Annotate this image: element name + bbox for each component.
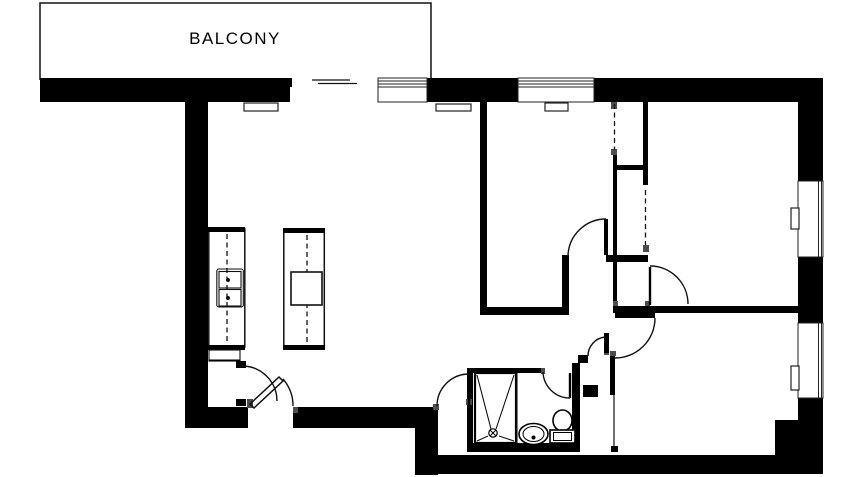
- kitchen: [208, 227, 325, 361]
- wall-segment: [438, 455, 823, 474]
- door-swing-arc: [568, 219, 606, 256]
- wall-step: [583, 385, 598, 397]
- counter-end: [208, 345, 245, 350]
- door-swing-arc: [283, 379, 293, 406]
- wall-segment: [798, 257, 823, 323]
- balcony-label: BALCONY: [189, 29, 281, 48]
- window: [518, 78, 594, 102]
- closet-wall: [617, 165, 643, 170]
- jamb: [433, 404, 439, 410]
- door-swing-arc: [543, 372, 570, 398]
- bathroom-wall: [467, 443, 580, 452]
- wall-segment: [40, 78, 290, 102]
- wall-segment: [578, 355, 588, 363]
- hall-closet-door: [437, 372, 469, 406]
- cupboard-door: [588, 333, 609, 356]
- bedroom1-door: [568, 219, 608, 256]
- wall-segment: [185, 407, 248, 428]
- balcony: BALCONY: [40, 3, 431, 84]
- door-swing-arc: [650, 266, 688, 304]
- shower-drain-icon: [489, 429, 497, 437]
- radiator: [436, 104, 471, 111]
- wall-segment: [798, 78, 823, 181]
- jamb: [613, 301, 618, 306]
- wall-step-column: [415, 407, 438, 475]
- door-jambs: [247, 102, 650, 413]
- wall-segment: [798, 398, 823, 422]
- wall-segment: [610, 356, 615, 395]
- windows: [244, 78, 823, 398]
- island-sink-icon: [291, 272, 322, 305]
- bathroom-door: [543, 372, 570, 398]
- door-swing-arc: [437, 374, 469, 406]
- washbasin-icon: [519, 424, 548, 445]
- radiator: [791, 366, 799, 390]
- base-cabinet: [209, 350, 240, 361]
- wall-segment: [480, 307, 568, 315]
- door-leaf: [604, 333, 609, 353]
- wall-segment: [594, 78, 823, 102]
- window: [378, 78, 427, 102]
- door-swing-arc: [588, 337, 605, 356]
- bedroom2-door: [650, 266, 688, 305]
- jamb: [293, 407, 298, 413]
- wall-segment: [293, 407, 415, 428]
- radiator: [791, 208, 799, 229]
- door-swing-arc: [615, 318, 655, 358]
- door-leaf: [250, 377, 283, 408]
- wardrobes: [615, 104, 646, 245]
- wall-notch: [288, 78, 292, 87]
- window: [798, 323, 823, 398]
- closet-wall: [643, 102, 648, 185]
- closet-wall: [613, 255, 648, 262]
- radiator: [545, 103, 568, 111]
- counter-end: [208, 227, 245, 232]
- bottom-room-door: [615, 313, 655, 358]
- wall-foot: [611, 446, 618, 452]
- shower-icon: [475, 372, 517, 443]
- exterior-walls: [40, 78, 823, 475]
- island-end: [283, 228, 325, 233]
- wall-segment: [185, 102, 208, 428]
- wall-segment: [427, 78, 518, 102]
- closet-wall: [613, 155, 617, 313]
- door-leaf: [604, 219, 608, 255]
- floor-plan: BALCONY: [0, 0, 864, 477]
- wall-segment: [480, 102, 487, 315]
- jamb: [610, 351, 616, 356]
- wall-segment: [562, 255, 569, 315]
- wall-segment: [613, 306, 798, 313]
- wall-segment: [236, 361, 246, 368]
- door-leaf: [615, 313, 655, 318]
- island-end: [283, 345, 325, 350]
- stove-icon: [217, 269, 244, 307]
- jamb: [643, 245, 649, 252]
- toilet-icon: [550, 410, 575, 443]
- wall-segment: [236, 399, 246, 406]
- bathroom: [475, 372, 575, 445]
- window: [798, 181, 823, 257]
- radiator: [244, 103, 278, 111]
- floor-plan-canvas: BALCONY: [0, 0, 864, 477]
